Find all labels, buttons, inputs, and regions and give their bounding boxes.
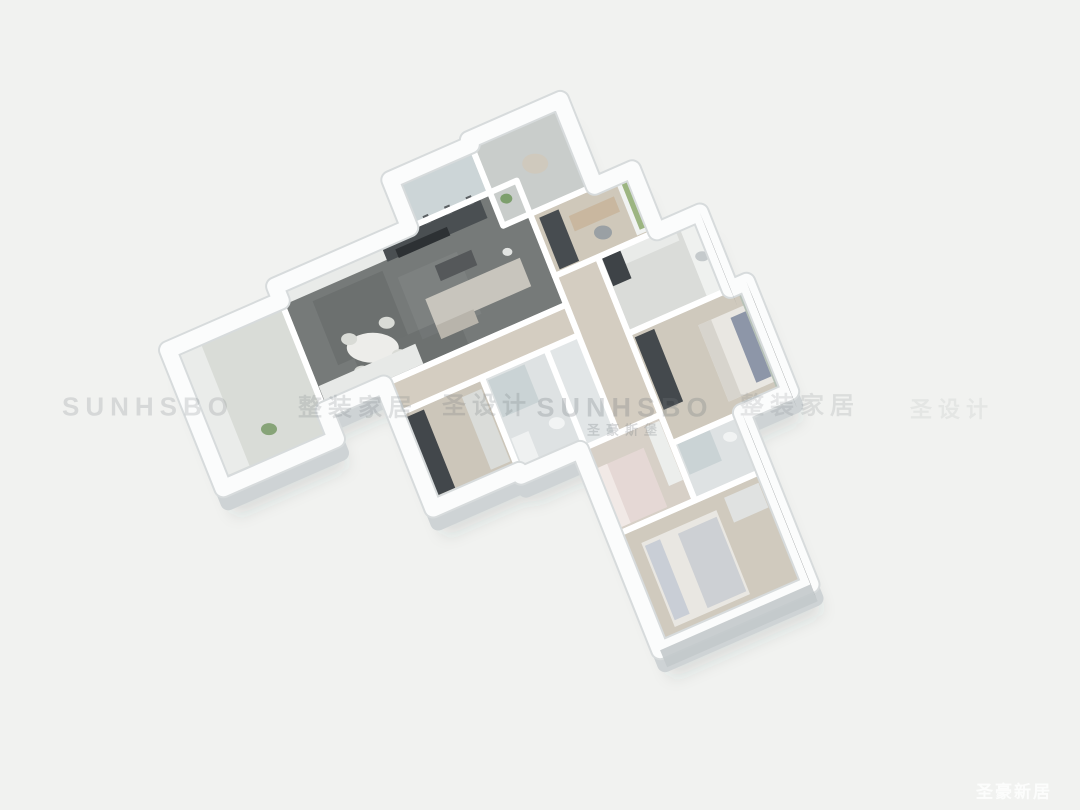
scene-background: SUNHSBO 整装家居 圣设计 SUNHSBO 整装家居 圣设计 圣豪斯堡 圣… bbox=[0, 0, 1080, 810]
entry-armchair bbox=[522, 154, 548, 174]
left-balcony-plant bbox=[261, 423, 277, 435]
living-dining-dining-chair bbox=[341, 333, 357, 345]
living-dining-floor-lamp bbox=[502, 248, 512, 256]
study-desk-chair bbox=[594, 226, 612, 240]
entry-plant bbox=[500, 194, 512, 204]
floorplan-3d-render bbox=[0, 0, 1080, 810]
living-dining-dining-chair bbox=[379, 317, 395, 329]
bathroom-1-toilet bbox=[549, 417, 565, 429]
bathroom-2-toilet bbox=[723, 432, 737, 442]
